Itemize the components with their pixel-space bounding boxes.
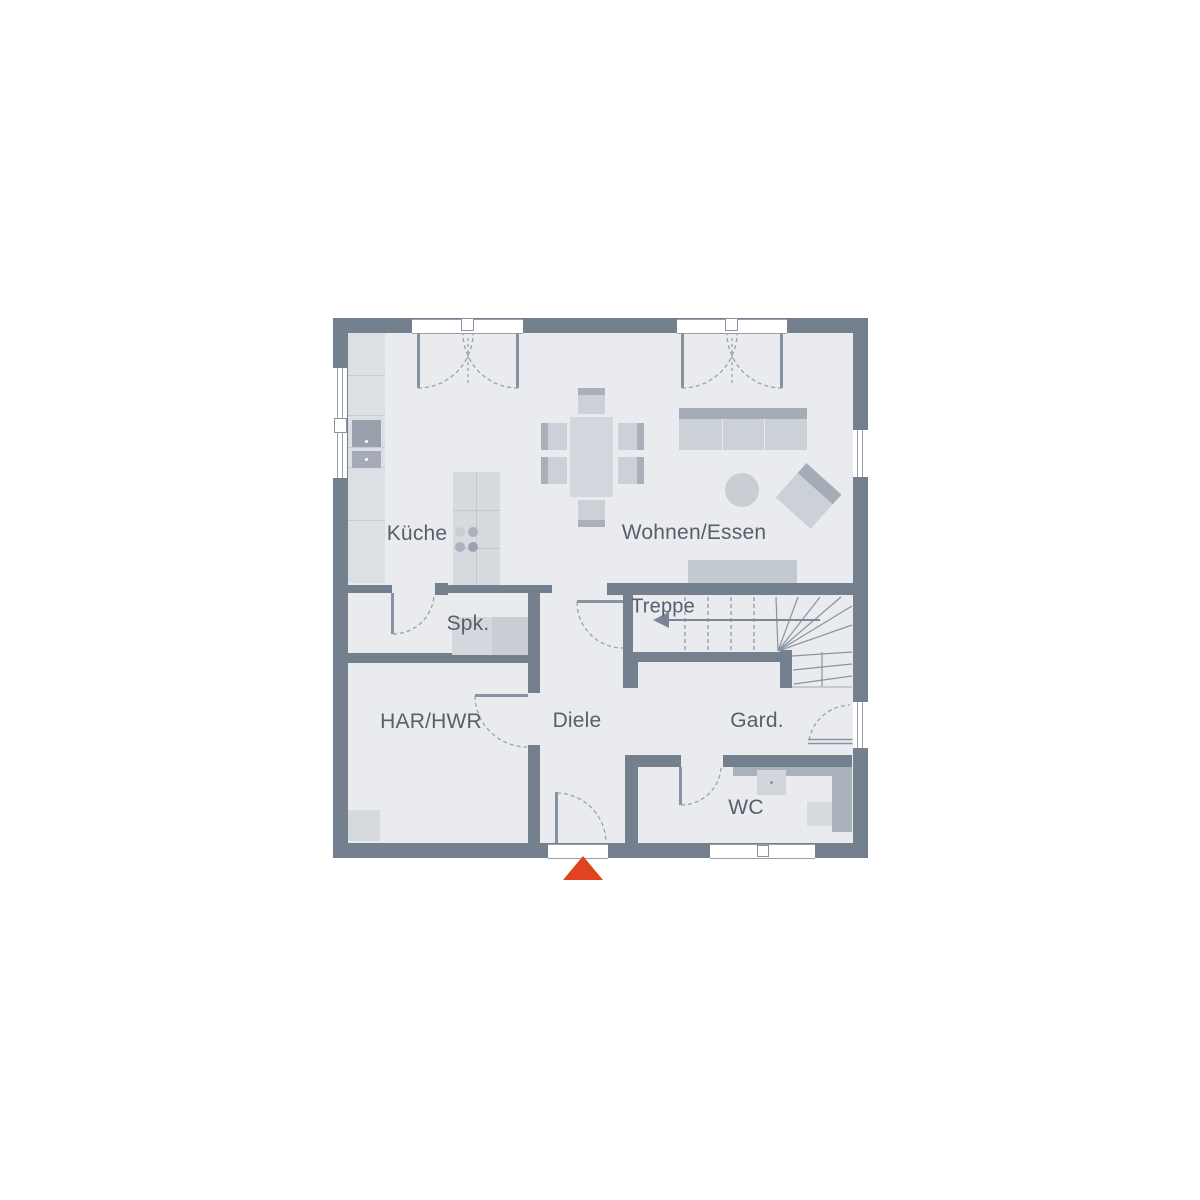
room-label-spk: Spk. [447,612,490,636]
washer-icon [348,810,380,841]
dining-chair [618,423,644,450]
island-divider [453,510,500,511]
counter-divider [348,375,385,376]
french-door-2-post [725,318,738,331]
window-wc-handle [757,845,769,857]
room-label-diele: Diele [553,709,602,733]
cooktop-burner [468,542,478,552]
dining-chair [541,457,567,484]
wall-diele-left-lower [528,745,540,843]
coffee-table [725,473,759,507]
counter-divider [348,520,385,521]
counter-divider [348,415,385,416]
sofa-cushion-divider [764,419,765,450]
sideboard [688,560,797,583]
wc-toilet [807,802,832,826]
dining-chair [541,423,567,450]
oven-knob [365,440,368,443]
window-right-frame [862,430,863,477]
gard-door-frame [857,702,858,748]
dining-chair [618,457,644,484]
wall-stairs-bottom [633,652,792,662]
window-left-handle [334,418,347,433]
dining-table [570,417,613,497]
window-right-frame [857,430,858,477]
wall-stairs-stub [780,650,792,688]
gard-door-frame [862,702,863,748]
dining-chair [578,500,605,527]
wc-duct [832,767,852,832]
french-door-1-post [461,318,474,331]
wall-diele-left-upper [528,593,540,693]
room-label-gard: Gard. [730,709,784,733]
room-label-kueche: Küche [387,522,448,546]
window-right [853,430,868,477]
wall-spk-left [348,585,392,593]
cooktop-burner [455,542,465,552]
entrance-marker [563,856,603,880]
room-label-treppe: Treppe [631,596,695,619]
wall-wc-top-right [723,755,852,767]
wall-spk-top [437,585,552,593]
room-label-wohnen-essen: Wohnen/Essen [622,521,766,545]
sofa-cushion-divider [722,419,723,450]
appliance-knob [365,458,368,461]
room-label-har-hwr: HAR/HWR [380,710,482,734]
floor-plan-canvas: Küche Wohnen/Essen Spk. Treppe HAR/HWR D… [0,0,1200,1200]
cooktop-burner [468,527,478,537]
building-outline: Küche Wohnen/Essen Spk. Treppe HAR/HWR D… [333,318,868,858]
dining-chair [578,388,605,414]
wc-sink-drain [770,781,773,784]
wall-living-stairs [607,583,853,595]
wall-wc-top-left [625,755,681,767]
wall-wc-left [625,767,638,843]
gard-door [853,702,868,748]
cooktop-burner [455,527,465,537]
sofa [679,408,807,450]
pantry-shelf [492,617,528,655]
room-label-wc: WC [728,796,763,820]
counter-divider [348,447,385,448]
